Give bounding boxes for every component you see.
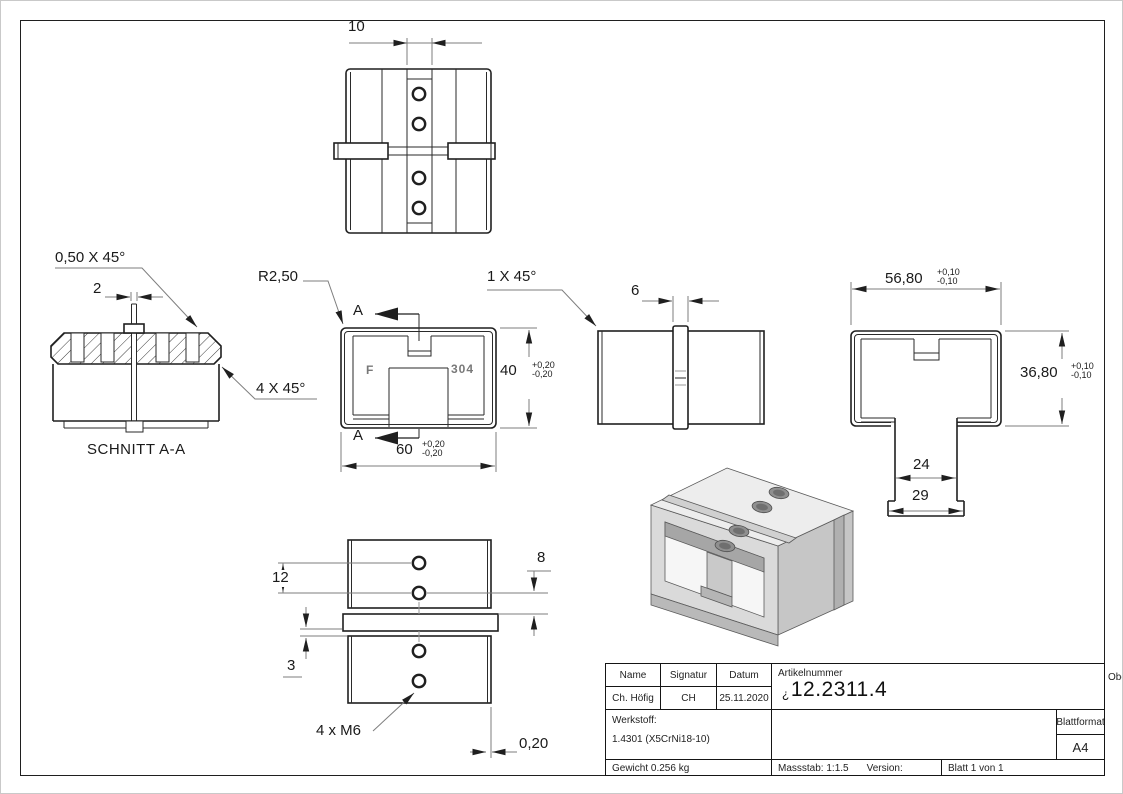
- drawing-sheet: 10 0,50 X 45° 2 4 X 45° SCHNITT A-A R2,5…: [0, 0, 1123, 794]
- tolerance-end-width: +0,10 -0,10: [937, 268, 960, 286]
- dim-label-edge-offset: 0,20: [519, 736, 548, 753]
- article-number-prefix: ¿: [782, 687, 790, 701]
- tolerance-minus: -0,10: [937, 277, 960, 286]
- surface-label: Oberfläche:: [1108, 672, 1123, 683]
- dim-label-leg-width: 29: [912, 488, 929, 505]
- section-letter-top: A: [353, 302, 363, 319]
- view-isometric: [651, 468, 853, 646]
- sheet-format-value: A4: [1057, 735, 1104, 760]
- dim-label-front-width: 60: [396, 442, 413, 459]
- tolerance-end-height: +0,10 -0,10: [1071, 362, 1094, 380]
- dim-label-slot-width: 24: [913, 457, 930, 474]
- dim-label-chamfer-small: 0,50 X 45°: [55, 250, 125, 267]
- article-cell: Artikelnummer Oberfläche: Geschliffen Ko…: [772, 664, 1104, 710]
- dim-label-hole-spacing: 12: [271, 570, 290, 587]
- article-number-value: 12.2311.4: [791, 678, 887, 701]
- scale-value: Massstab: 1:1.5: [778, 763, 849, 774]
- dim-label-end-width: 56,80: [885, 271, 923, 288]
- material-value: 1.4301 (X5CrNi18-10): [612, 734, 771, 745]
- dim-label-slit-width: 2: [93, 281, 101, 298]
- scale-cell: Massstab: 1:1.5 Version:: [772, 760, 942, 776]
- stamp-f: F: [366, 363, 374, 377]
- view-side-linework: [598, 296, 764, 429]
- view-top-linework: [334, 38, 495, 233]
- sheet-format-label: Blattformat: [1057, 710, 1104, 735]
- tolerance-minus: -0,20: [422, 449, 445, 458]
- dim-label-chamfer-large: 4 X 45°: [256, 381, 305, 398]
- title-block-date-value: 25.11.2020: [717, 687, 772, 710]
- title-block-empty-cell: [772, 710, 1057, 760]
- dim-label-top-width: 10: [348, 19, 365, 36]
- surface-finish: Oberfläche: Geschliffen Korn 240: [1108, 672, 1123, 683]
- sheet-count-cell: Blatt 1 von 1: [942, 760, 1104, 776]
- weight-cell: Gewicht 0.256 kg: [606, 760, 772, 776]
- section-letter-bottom: A: [353, 427, 363, 444]
- title-block-header-name: Name: [606, 664, 661, 687]
- title-block-header-date: Datum: [717, 664, 772, 687]
- dim-label-hole-edge: 8: [537, 550, 545, 567]
- version-label: Version:: [867, 763, 903, 774]
- dim-label-collar-edge: 3: [287, 658, 295, 675]
- dim-label-front-height: 40: [500, 363, 517, 380]
- material-cell: Werkstoff: 1.4301 (X5CrNi18-10): [606, 710, 772, 760]
- material-label: Werkstoff:: [612, 715, 771, 726]
- dim-label-radius: R2,50: [258, 269, 298, 286]
- tolerance-minus: -0,10: [1071, 371, 1094, 380]
- dim-label-collar-width: 6: [631, 283, 639, 300]
- title-block-name-value: Ch. Höfig: [606, 687, 661, 710]
- dim-label-side-chamfer: 1 X 45°: [487, 269, 536, 286]
- title-block: Name Signatur Datum Ch. Höfig CH 25.11.2…: [605, 663, 1105, 776]
- title-block-header-signature: Signatur: [661, 664, 717, 687]
- view-end-linework: [851, 282, 1069, 516]
- article-number: ¿12.2311.4: [782, 678, 887, 702]
- section-view-title: SCHNITT A-A: [87, 441, 186, 458]
- thread-callout: 4 x M6: [316, 723, 361, 740]
- stamp-304: 304: [451, 362, 474, 376]
- tolerance-minus: -0,20: [532, 370, 555, 379]
- tolerance-front-height: +0,20 -0,20: [532, 361, 555, 379]
- dim-label-end-height: 36,80: [1019, 365, 1059, 382]
- view-section-linework: [51, 268, 317, 432]
- tolerance-front-width: +0,20 -0,20: [422, 440, 445, 458]
- title-block-signature-value: CH: [661, 687, 717, 710]
